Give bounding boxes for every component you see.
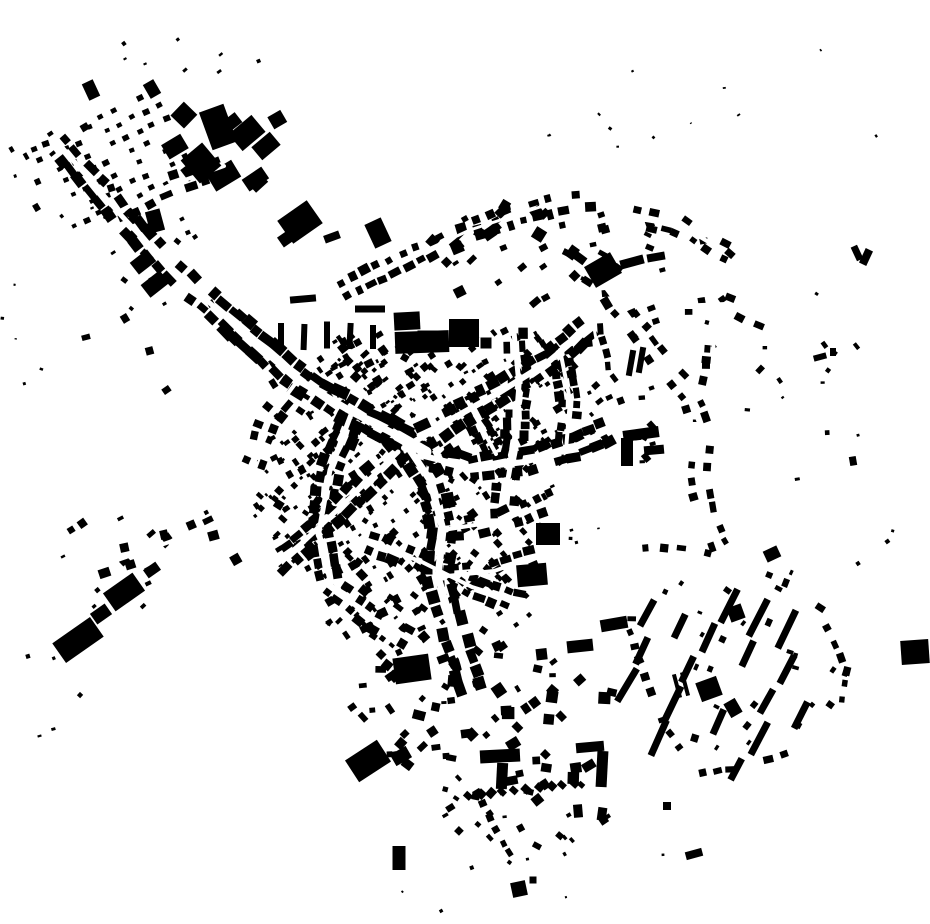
hbar-1	[290, 294, 317, 303]
building	[119, 542, 129, 552]
building	[179, 216, 185, 221]
bigL-3	[449, 319, 479, 347]
building	[335, 371, 343, 380]
building	[573, 401, 580, 408]
building	[511, 721, 523, 733]
building	[677, 392, 686, 401]
building	[316, 366, 323, 374]
building	[546, 690, 559, 703]
hbar-2	[355, 306, 385, 313]
building	[514, 685, 521, 693]
e-speck-2	[830, 348, 836, 356]
building	[521, 422, 530, 429]
building	[136, 94, 144, 102]
building	[742, 721, 751, 731]
building	[395, 540, 402, 547]
building	[262, 401, 274, 412]
building	[332, 474, 344, 487]
building	[699, 632, 705, 638]
building	[202, 515, 214, 525]
building	[77, 518, 88, 529]
building	[121, 41, 127, 47]
building	[476, 491, 480, 495]
building	[39, 367, 43, 371]
building	[15, 338, 17, 340]
building	[517, 262, 527, 272]
building	[519, 340, 526, 352]
building	[503, 417, 511, 430]
south-L7-b	[596, 751, 609, 788]
building	[471, 215, 481, 225]
building	[479, 626, 488, 635]
building	[278, 514, 288, 523]
building	[385, 703, 395, 715]
building	[831, 640, 840, 650]
building	[329, 488, 339, 500]
building	[496, 610, 503, 617]
building	[355, 285, 364, 295]
building	[453, 795, 460, 801]
building	[412, 709, 426, 721]
building	[648, 719, 670, 757]
building	[140, 603, 147, 609]
building	[630, 643, 639, 651]
building	[142, 108, 151, 116]
building	[610, 373, 619, 383]
building	[49, 150, 56, 157]
building	[486, 834, 494, 842]
building	[490, 682, 507, 699]
building	[713, 704, 720, 710]
building	[388, 642, 395, 648]
building	[652, 135, 656, 139]
building	[444, 359, 453, 368]
building	[446, 543, 451, 548]
building	[439, 909, 444, 914]
building	[441, 701, 446, 704]
building	[814, 292, 819, 296]
building	[569, 376, 578, 386]
building	[384, 256, 393, 265]
building	[502, 815, 506, 818]
building	[499, 244, 507, 252]
building	[776, 377, 783, 384]
building	[422, 394, 428, 400]
building	[753, 320, 765, 330]
building	[369, 531, 381, 541]
building	[597, 211, 605, 218]
building	[626, 628, 634, 636]
building	[291, 552, 304, 565]
building	[120, 313, 131, 324]
building	[763, 755, 774, 764]
building	[409, 491, 416, 498]
building	[128, 113, 135, 120]
building	[94, 587, 100, 593]
building	[129, 306, 135, 311]
building	[775, 609, 800, 650]
big-square-east	[900, 639, 930, 665]
building	[431, 744, 441, 751]
building	[779, 750, 789, 759]
building	[137, 128, 144, 135]
building	[34, 178, 42, 186]
building	[693, 663, 699, 670]
building	[538, 243, 548, 252]
building	[23, 152, 30, 160]
building	[71, 191, 77, 196]
building	[143, 140, 151, 147]
building	[503, 342, 510, 354]
building	[416, 255, 426, 264]
building	[500, 839, 508, 847]
building	[302, 509, 310, 516]
building	[540, 749, 551, 760]
building	[507, 860, 513, 866]
building	[71, 223, 77, 228]
building	[575, 541, 579, 545]
building	[447, 697, 455, 704]
building	[439, 619, 446, 626]
building	[257, 459, 267, 470]
building	[203, 510, 209, 516]
building	[549, 658, 558, 666]
building	[485, 597, 498, 610]
building	[523, 788, 534, 796]
building	[386, 571, 394, 580]
hbar-3	[418, 331, 443, 338]
eL-b	[621, 438, 633, 466]
nw-small-1	[82, 79, 100, 100]
eL-c	[644, 445, 665, 456]
building	[471, 369, 476, 374]
building	[354, 452, 360, 458]
building	[290, 482, 298, 490]
building	[364, 545, 374, 556]
building	[377, 344, 389, 356]
building	[107, 183, 116, 192]
building	[504, 586, 514, 595]
building	[662, 854, 665, 857]
building	[375, 359, 379, 364]
building	[474, 821, 481, 828]
building	[256, 492, 264, 500]
building	[544, 194, 552, 203]
building	[390, 400, 394, 404]
street-w-row	[100, 526, 214, 566]
building	[382, 376, 389, 383]
building	[568, 270, 580, 282]
building	[404, 563, 413, 572]
building	[454, 609, 468, 626]
building	[842, 680, 848, 687]
building	[426, 590, 441, 606]
building	[443, 753, 450, 759]
building	[409, 397, 413, 401]
building	[250, 430, 259, 440]
building	[376, 453, 382, 459]
bigL-4	[481, 338, 492, 349]
building	[401, 890, 404, 893]
barrack-1	[278, 323, 284, 349]
south-T-top	[480, 748, 521, 763]
building	[350, 371, 362, 383]
building	[274, 485, 284, 495]
building	[605, 362, 611, 371]
building	[536, 507, 548, 519]
building	[242, 455, 252, 464]
building	[253, 514, 258, 519]
center-big-2	[536, 523, 560, 545]
building	[678, 369, 689, 380]
building	[13, 174, 17, 178]
building	[447, 675, 461, 687]
building	[631, 70, 634, 73]
building	[426, 725, 439, 738]
br-bar	[685, 848, 703, 860]
building	[192, 234, 198, 240]
building	[41, 140, 50, 148]
building	[598, 336, 607, 346]
building	[891, 529, 895, 532]
building	[642, 544, 649, 552]
south-T-leg	[496, 763, 508, 790]
building	[676, 545, 686, 552]
building	[463, 370, 468, 374]
building	[304, 565, 312, 573]
building	[382, 494, 389, 501]
building	[403, 508, 409, 514]
building	[573, 673, 586, 686]
building	[414, 498, 421, 504]
building	[539, 263, 547, 271]
building	[383, 576, 388, 582]
building	[482, 731, 490, 739]
building	[856, 434, 859, 437]
br-dot	[663, 802, 671, 810]
building	[765, 571, 773, 579]
building	[371, 367, 377, 373]
building	[533, 664, 543, 673]
building	[697, 399, 706, 408]
building	[47, 130, 54, 137]
building	[723, 586, 732, 595]
building	[874, 134, 878, 138]
building	[526, 612, 532, 618]
building	[253, 419, 264, 429]
building	[825, 430, 830, 435]
building	[786, 649, 794, 655]
building	[370, 260, 380, 270]
building	[829, 666, 836, 674]
building	[338, 541, 345, 547]
building	[638, 395, 645, 400]
building	[145, 580, 152, 586]
building	[173, 237, 181, 245]
building	[716, 524, 725, 534]
tc-blob	[364, 217, 391, 248]
bottom-block	[393, 846, 406, 870]
building	[51, 727, 56, 731]
building	[549, 673, 556, 677]
building	[689, 236, 697, 244]
building	[616, 146, 619, 148]
building	[346, 540, 350, 545]
building	[122, 134, 130, 142]
building	[299, 476, 303, 480]
building	[184, 293, 197, 306]
building	[167, 169, 179, 181]
building	[737, 113, 741, 116]
building	[491, 714, 500, 723]
building	[597, 112, 601, 116]
building	[671, 613, 689, 640]
building	[781, 578, 790, 588]
building	[412, 531, 419, 538]
building	[569, 528, 573, 531]
building	[307, 452, 314, 459]
building	[698, 768, 707, 777]
building	[627, 616, 636, 621]
building	[710, 708, 727, 736]
building	[154, 236, 167, 249]
building	[645, 244, 655, 252]
building	[426, 537, 437, 552]
building	[571, 191, 580, 199]
building	[186, 519, 197, 530]
building	[396, 637, 408, 649]
building	[535, 648, 547, 660]
building	[748, 721, 771, 757]
building	[264, 493, 268, 497]
building	[162, 301, 167, 306]
building	[705, 445, 714, 454]
building	[714, 745, 720, 751]
building	[608, 126, 613, 130]
building	[701, 356, 711, 364]
building	[739, 639, 757, 668]
building	[595, 397, 604, 405]
building	[455, 774, 462, 781]
building	[557, 206, 569, 216]
building	[572, 316, 585, 329]
building	[361, 555, 370, 565]
building	[792, 665, 799, 670]
building	[229, 553, 242, 566]
building	[60, 554, 65, 558]
sw-warehouse-a	[52, 617, 103, 663]
building	[184, 181, 199, 193]
building	[525, 538, 533, 546]
building	[688, 461, 695, 468]
building	[402, 260, 416, 272]
building	[129, 147, 135, 153]
building	[703, 463, 711, 472]
building	[485, 787, 497, 799]
building	[398, 390, 406, 399]
building	[565, 452, 581, 464]
building	[436, 627, 449, 642]
building	[8, 146, 14, 153]
ne-hatch-2	[646, 251, 665, 262]
street-nne-road	[562, 216, 722, 250]
building	[572, 411, 582, 419]
building	[332, 339, 338, 344]
building	[13, 284, 15, 286]
building	[550, 484, 555, 488]
building	[519, 527, 527, 536]
building	[459, 378, 467, 386]
building	[452, 260, 459, 266]
landmarks-layer	[52, 79, 930, 898]
building	[176, 37, 180, 41]
building	[52, 656, 56, 660]
building	[482, 470, 495, 480]
building	[268, 378, 278, 389]
building	[494, 278, 502, 286]
building	[430, 604, 443, 617]
building	[478, 527, 492, 538]
building	[657, 344, 668, 355]
building	[763, 346, 768, 349]
building	[532, 756, 540, 764]
building	[417, 625, 426, 632]
building	[518, 328, 527, 339]
e-speck-3	[849, 456, 857, 466]
factory-b	[323, 231, 341, 244]
building	[637, 598, 657, 627]
building	[591, 381, 600, 390]
building	[640, 672, 650, 682]
building	[292, 429, 298, 435]
building	[357, 263, 371, 277]
building	[323, 587, 333, 597]
building	[32, 203, 41, 212]
building	[146, 529, 156, 538]
building	[104, 128, 110, 133]
building	[306, 457, 316, 467]
building	[569, 837, 575, 843]
building	[662, 589, 668, 596]
building	[825, 700, 835, 709]
building	[718, 635, 727, 644]
ne-hatch-1	[619, 255, 645, 270]
barrack-3	[324, 322, 330, 349]
building	[350, 525, 356, 532]
building	[543, 714, 554, 725]
building	[358, 712, 369, 723]
bottom-d	[597, 807, 608, 821]
building	[641, 322, 651, 332]
building	[661, 685, 684, 723]
building	[115, 186, 123, 193]
building	[690, 733, 699, 742]
center-big-1	[516, 563, 548, 588]
building	[585, 202, 596, 212]
building	[360, 349, 370, 359]
building	[117, 515, 124, 521]
building	[420, 362, 430, 372]
building	[713, 767, 723, 775]
building	[385, 400, 390, 405]
building	[709, 501, 717, 513]
building	[459, 472, 468, 482]
building	[559, 221, 566, 229]
building	[490, 492, 500, 503]
building	[145, 346, 155, 356]
building	[520, 217, 527, 224]
building	[745, 408, 751, 412]
